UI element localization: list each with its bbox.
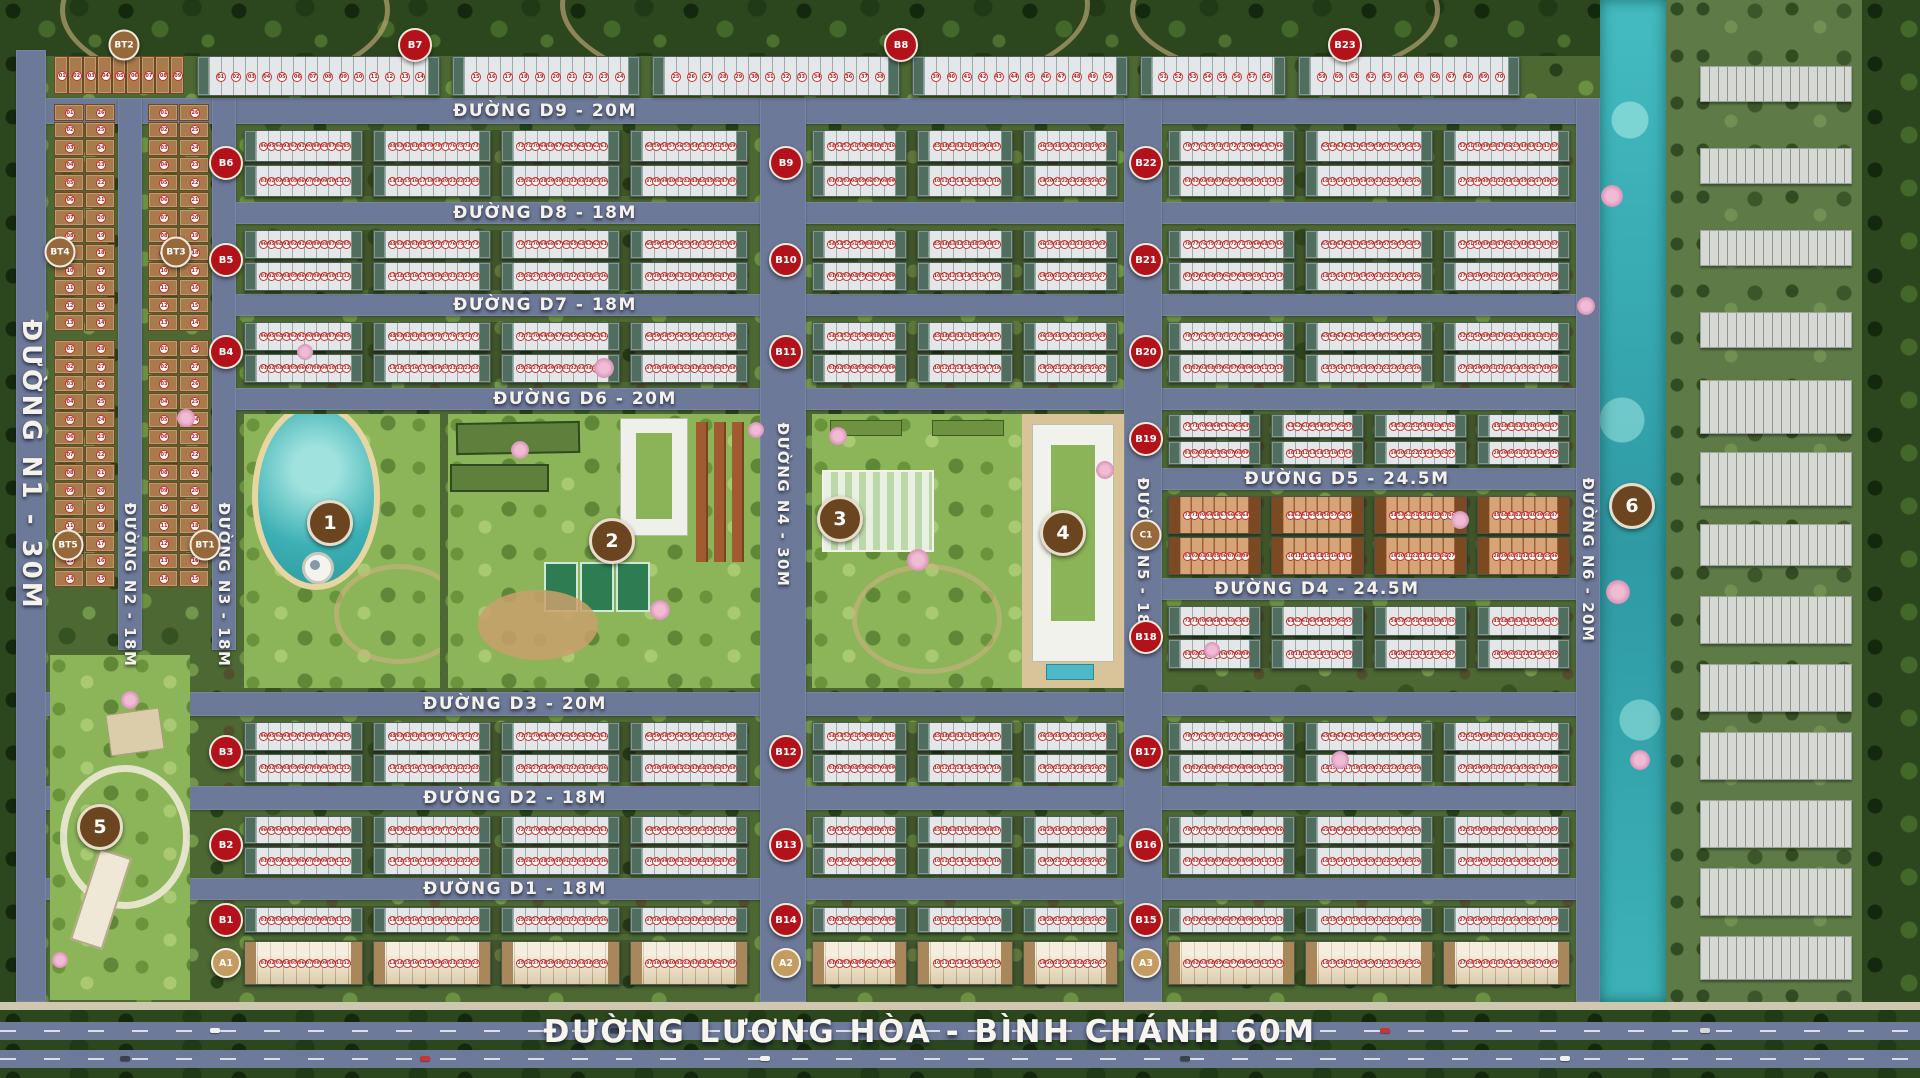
block-strip[interactable]: 8483828180797877767574731314151617181920…: [373, 722, 492, 782]
house-strip-upper[interactable]: 727170696867666564636261: [501, 322, 620, 351]
block-strip[interactable]: 545352515049484746010203040506070809: [812, 322, 907, 382]
tennis-court[interactable]: [616, 562, 650, 612]
villa-lot[interactable]: 06: [148, 429, 178, 446]
block-badge-B10[interactable]: B10: [769, 243, 803, 277]
villa-lot[interactable]: 10: [54, 499, 84, 516]
block-strip[interactable]: 454443424140393837282930313233343536: [1477, 606, 1570, 668]
villa-lot[interactable]: 14: [54, 570, 84, 587]
villa-lot[interactable]: 07: [148, 446, 178, 463]
block-row[interactable]: 7877767574737271706968676601020304050607…: [1168, 230, 1570, 290]
house-strip-lower[interactable]: 373839404142434445464748: [630, 847, 749, 875]
house-strip-upper[interactable]: 363534333231302928: [1023, 230, 1118, 259]
house-strip[interactable]: 192021222324252627: [1023, 941, 1118, 985]
house-strip-upper[interactable]: 65646362616059585756555453: [1305, 230, 1432, 259]
block-strip[interactable]: 545352515049484746192021222324252627: [1374, 496, 1467, 574]
villa-lot[interactable]: 26: [179, 375, 209, 392]
block-badge-B17[interactable]: B17: [1129, 735, 1163, 769]
block-strip[interactable]: 6564636261605958575655545314151617181920…: [1305, 130, 1432, 196]
block-badge-BT4[interactable]: BT4: [45, 237, 76, 268]
house-strip-upper[interactable]: 52515049484746454443424140: [1443, 230, 1570, 259]
block-strip[interactable]: 192021222324252627: [1023, 940, 1118, 986]
house-strip-upper[interactable]: 363534333231302928: [1023, 722, 1118, 751]
villa-lot[interactable]: 05: [112, 56, 126, 94]
house-strip-lower[interactable]: 131415161718192021222324: [373, 165, 492, 197]
house-strip-upper[interactable]: 65646362616059585756555453: [1305, 816, 1432, 844]
villa-strip-top[interactable]: 010203040506070809: [54, 56, 184, 96]
road-D6[interactable]: [236, 388, 1600, 410]
block-strip[interactable]: 8483828180797877767574731314151617181920…: [373, 130, 492, 196]
house-strip-upper[interactable]: 454443424140393837: [917, 816, 1012, 844]
villa-lot[interactable]: 10: [148, 499, 178, 516]
block-row[interactable]: 7877767574737271706968676601020304050607…: [1168, 130, 1570, 196]
house-strip-lower[interactable]: 01020304050607080910111213: [1168, 262, 1295, 291]
house-strip-upper[interactable]: 727170696867666564636261: [501, 722, 620, 751]
house-strip-upper[interactable]: 848382818079787776757473: [373, 722, 492, 751]
house-strip-upper[interactable]: 78777675747372717069686766: [1168, 322, 1295, 351]
villa-lot[interactable]: 21: [179, 192, 209, 209]
villa-lot[interactable]: 20: [85, 209, 115, 226]
block-strip[interactable]: 7877767574737271706968676601020304050607…: [1168, 816, 1295, 874]
villa-lot[interactable]: 02: [148, 358, 178, 375]
block-badge-B3[interactable]: B3: [209, 735, 243, 769]
block-strip-top[interactable]: 394041424344454647484950: [912, 56, 1128, 96]
villa-lot[interactable]: 24: [85, 139, 115, 156]
villa-lot[interactable]: 12: [148, 535, 178, 552]
block-badge-B9[interactable]: B9: [769, 146, 803, 180]
block-strip[interactable]: 545352515049484746192021222324252627: [1374, 414, 1467, 464]
house-strip-upper[interactable]: 454443424140393837: [917, 722, 1012, 751]
house-strip-lower[interactable]: 010203040506070809: [812, 754, 907, 783]
villa-group[interactable]: 0126022503240423052206210720081909181017…: [54, 104, 116, 332]
house-strip-upper[interactable]: 78777675747372717069686766: [1168, 816, 1295, 844]
block-strip[interactable]: 7271706968676665646362612526272829303132…: [501, 130, 620, 196]
block-badge-B8[interactable]: B8: [884, 28, 918, 62]
villa-lot[interactable]: 20: [179, 209, 209, 226]
block-row[interactable]: 7271706968676665640102030405060708096362…: [1168, 414, 1570, 464]
house-strip-upper[interactable]: 848382818079787776757473: [373, 816, 492, 844]
road-D3[interactable]: [46, 692, 1600, 716]
villa-lot[interactable]: 14: [148, 570, 178, 587]
block-badge-B7[interactable]: B7: [398, 28, 432, 62]
house-strip-lower[interactable]: 252627282930313233343536: [501, 165, 620, 197]
block-row[interactable]: 7877767574737271706968676601020304050607…: [1168, 816, 1570, 874]
villa-lot[interactable]: 08: [155, 56, 169, 94]
house-strip-upper[interactable]: 727170696867666564636261: [501, 816, 620, 844]
block-strip[interactable]: 454443424140393837282930313233343536: [1477, 414, 1570, 464]
amenity-badge-1[interactable]: 1: [307, 500, 353, 546]
house-strip-lower[interactable]: 27282930313233343536373839: [1443, 262, 1570, 291]
block-badge-B20[interactable]: B20: [1129, 335, 1163, 369]
villa-lot[interactable]: 24: [85, 411, 115, 428]
amenity-badge-5[interactable]: 5: [77, 804, 123, 850]
block-row[interactable]: 7271706968676665640102030405060708096362…: [1168, 606, 1570, 668]
house-strip-lower[interactable]: 27282930313233343536373839: [1443, 165, 1570, 197]
block-row[interactable]: 7877767574737271706968676601020304050607…: [1168, 322, 1570, 382]
block-row[interactable]: 5453525150494847460102030405060708094544…: [812, 722, 1118, 782]
villa-lot[interactable]: 26: [85, 104, 115, 121]
house-strip-upper[interactable]: 545352515049484746: [1374, 606, 1467, 636]
block-badge-C1[interactable]: C1: [1131, 520, 1162, 551]
block-badge-BT5[interactable]: BT5: [53, 530, 84, 561]
block-strip[interactable]: 373839404142434445464748: [630, 906, 749, 934]
villa-lot[interactable]: 17: [85, 262, 115, 279]
house-strip-lower[interactable]: 101112131415161718: [1271, 639, 1364, 669]
house-strip[interactable]: 252627282930313233343536: [501, 907, 620, 933]
house-strip[interactable]: 394041424344454647484950: [912, 56, 1128, 96]
road-D7[interactable]: [236, 294, 1600, 316]
block-strip[interactable]: 363534333231302928192021222324252627: [1023, 722, 1118, 782]
block-badge-B14[interactable]: B14: [769, 903, 803, 937]
block-strip[interactable]: 010203040506070809: [812, 940, 907, 986]
block-badge-B5[interactable]: B5: [209, 243, 243, 277]
villa-lot[interactable]: 16: [179, 279, 209, 296]
block-strip[interactable]: 363534333231302928192021222324252627: [1023, 230, 1118, 290]
block-badge-BT3[interactable]: BT3: [161, 237, 192, 268]
house-strip-lower[interactable]: 27282930313233343536373839: [1443, 754, 1570, 783]
block-strip-top[interactable]: 2526272829303132333435363738: [652, 56, 900, 96]
villa-lot[interactable]: 05: [54, 411, 84, 428]
block-strip[interactable]: 252627282930313233343536: [501, 940, 620, 986]
house-strip-upper[interactable]: 65646362616059585756555453: [1305, 322, 1432, 351]
house-strip[interactable]: 373839404142434445464748: [630, 907, 749, 933]
house-strip[interactable]: 010203040506070809101112: [244, 941, 363, 985]
house-strip-lower[interactable]: 01020304050607080910111213: [1168, 354, 1295, 383]
house-strip-lower[interactable]: 101112131415161718: [917, 847, 1012, 875]
block-strip[interactable]: 7877767574737271706968676601020304050607…: [1168, 230, 1295, 290]
block-row[interactable]: 5453525150494847460102030405060708094544…: [812, 816, 1118, 874]
house-strip-upper[interactable]: 78777675747372717069686766: [1168, 230, 1295, 259]
block-badge-B19[interactable]: B19: [1129, 422, 1163, 456]
villa-lot[interactable]: 01: [148, 104, 178, 121]
house-strip[interactable]: 14151617181920212223242526: [1305, 941, 1432, 985]
house-strip-lower[interactable]: 192021222324252627: [1023, 354, 1118, 383]
villa-lot[interactable]: 04: [148, 157, 178, 174]
block-row[interactable]: 9695949392919089888786850102030405060708…: [244, 130, 748, 196]
house-strip-upper[interactable]: 605958575655545352515049: [630, 722, 749, 751]
amenity-badge-2[interactable]: 2: [589, 518, 635, 564]
house-strip-upper[interactable]: 52515049484746454443424140: [1443, 722, 1570, 751]
block-strip[interactable]: 5251504948474645444342414027282930313233…: [1443, 722, 1570, 782]
block-strip[interactable]: 101112131415161718: [917, 940, 1012, 986]
block-strip[interactable]: 545352515049484746010203040506070809: [812, 722, 907, 782]
house-strip-lower[interactable]: 01020304050607080910111213: [1168, 847, 1295, 875]
villa-lot[interactable]: 11: [148, 279, 178, 296]
block-strip[interactable]: 14151617181920212223242526: [1305, 906, 1432, 934]
house-strip-lower[interactable]: 101112131415161718: [917, 262, 1012, 291]
block-badge-B11[interactable]: B11: [769, 335, 803, 369]
block-strip[interactable]: 5251504948474645444342414027282930313233…: [1443, 322, 1570, 382]
block-badge-B18[interactable]: B18: [1129, 620, 1163, 654]
block-badge-B21[interactable]: B21: [1129, 243, 1163, 277]
house-strip[interactable]: 596061626364656667686970: [1298, 56, 1520, 96]
block-strip[interactable]: 454443424140393837101112131415161718: [917, 322, 1012, 382]
block-badge-B12[interactable]: B12: [769, 735, 803, 769]
villa-lot[interactable]: 03: [54, 139, 84, 156]
block-strip[interactable]: 6059585756555453525150493738394041424344…: [630, 322, 749, 382]
villa-lot[interactable]: 15: [85, 297, 115, 314]
villa-lot[interactable]: 25: [85, 122, 115, 139]
villa-lot[interactable]: 04: [97, 56, 111, 94]
block-strip[interactable]: 727170696867666564010203040506070809: [1168, 414, 1261, 464]
house-strip-lower[interactable]: 192021222324252627: [1023, 754, 1118, 783]
house-strip[interactable]: 010203040506070809: [812, 907, 907, 933]
house-strip[interactable]: 192021222324252627: [1023, 907, 1118, 933]
house-strip-lower[interactable]: 101112131415161718: [917, 354, 1012, 383]
block-row[interactable]: 0102030405060708091011121314151617181920…: [244, 940, 748, 986]
villa-lot[interactable]: 11: [148, 517, 178, 534]
house-strip-upper[interactable]: 454443424140393837: [1477, 414, 1570, 438]
block-strip[interactable]: 01020304050607080910111213: [1168, 940, 1295, 986]
amenity-badge-3[interactable]: 3: [817, 496, 863, 542]
villa-lot[interactable]: 21: [179, 464, 209, 481]
villa-lot[interactable]: 16: [85, 553, 115, 570]
house-strip-upper[interactable]: 545352515049484746: [1374, 414, 1467, 438]
villa-lot[interactable]: 13: [148, 314, 178, 331]
block-strip[interactable]: 7271706968676665646362612526272829303132…: [501, 722, 620, 782]
house-strip-upper[interactable]: 848382818079787776757473: [373, 322, 492, 351]
block-strip[interactable]: 6564636261605958575655545314151617181920…: [1305, 230, 1432, 290]
house-strip-lower[interactable]: 010203040506070809: [812, 354, 907, 383]
house-strip-upper[interactable]: 78777675747372717069686766: [1168, 130, 1295, 162]
villa-lot[interactable]: 18: [85, 244, 115, 261]
villa-lot[interactable]: 14: [85, 314, 115, 331]
villa-lot[interactable]: 06: [54, 192, 84, 209]
amenity-badge-4[interactable]: 4: [1040, 510, 1086, 556]
block-strip[interactable]: 454443424140393837101112131415161718: [917, 722, 1012, 782]
villa-lot[interactable]: 06: [126, 56, 140, 94]
block-strip[interactable]: 9695949392919089888786850102030405060708…: [244, 816, 363, 874]
house-strip-lower[interactable]: 14151617181920212223242526: [1305, 165, 1432, 197]
road-D9[interactable]: [46, 98, 1600, 124]
villa-lot[interactable]: 17: [85, 535, 115, 552]
house-strip[interactable]: 27282930313233343536373839: [1443, 941, 1570, 985]
villa-lot[interactable]: 23: [85, 429, 115, 446]
block-strip[interactable]: 8483828180797877767574731314151617181920…: [373, 816, 492, 874]
villa-lot[interactable]: 19: [179, 499, 209, 516]
house-strip-upper[interactable]: 65646362616059585756555453: [1305, 722, 1432, 751]
house-strip-upper[interactable]: 605958575655545352515049: [630, 816, 749, 844]
villa-lot[interactable]: 05: [54, 174, 84, 191]
block-strip[interactable]: 27282930313233343536373839: [1443, 906, 1570, 934]
villa-lot[interactable]: 02: [54, 122, 84, 139]
block-row[interactable]: 0102030405060708091011121314151617181920…: [812, 940, 1118, 986]
house-strip-upper[interactable]: 969594939291908988878685: [244, 816, 363, 844]
block-strip[interactable]: 363534333231302928192021222324252627: [1023, 130, 1118, 196]
block-strip[interactable]: 8483828180797877767574731314151617181920…: [373, 230, 492, 290]
house-strip[interactable]: 2526272829303132333435363738: [652, 56, 900, 96]
villa-lot[interactable]: 06: [148, 192, 178, 209]
house-strip-upper[interactable]: 636261605958575655: [1271, 496, 1364, 534]
villa-lot[interactable]: 20: [85, 482, 115, 499]
block-strip[interactable]: 9695949392919089888786850102030405060708…: [244, 130, 363, 196]
house-strip-upper[interactable]: 636261605958575655: [1271, 606, 1364, 636]
house-strip-lower[interactable]: 192021222324252627: [1023, 165, 1118, 197]
villa-lot[interactable]: 08: [148, 464, 178, 481]
villa-lot[interactable]: 26: [179, 104, 209, 121]
block-badge-B22[interactable]: B22: [1129, 146, 1163, 180]
house-strip-upper[interactable]: 727170696867666564: [1168, 606, 1261, 636]
house-strip[interactable]: 0102030405060708091011121314: [197, 56, 440, 96]
house-strip[interactable]: 01020304050607080910111213: [1168, 941, 1295, 985]
house-strip-lower[interactable]: 252627282930313233343536: [501, 262, 620, 291]
villa-lot[interactable]: 03: [83, 56, 97, 94]
villa-lot[interactable]: 03: [148, 139, 178, 156]
house-strip-upper[interactable]: 78777675747372717069686766: [1168, 722, 1295, 751]
block-row[interactable]: 5453525150494847460102030405060708094544…: [812, 230, 1118, 290]
villa-lot[interactable]: 27: [179, 358, 209, 375]
villa-lot[interactable]: 23: [179, 157, 209, 174]
house-strip-upper[interactable]: 545352515049484746: [812, 130, 907, 162]
block-badge-A2[interactable]: A2: [771, 948, 801, 978]
house-strip-lower[interactable]: 101112131415161718: [1271, 441, 1364, 465]
block-row[interactable]: 9695949392919089888786850102030405060708…: [244, 722, 748, 782]
block-strip[interactable]: 454443424140393837101112131415161718: [917, 130, 1012, 196]
block-strip[interactable]: 636261605958575655101112131415161718: [1271, 606, 1364, 668]
villa-lot[interactable]: 12: [54, 297, 84, 314]
house-strip-upper[interactable]: 969594939291908988878685: [244, 722, 363, 751]
villa-lot[interactable]: 08: [54, 464, 84, 481]
block-strip[interactable]: 6059585756555453525150493738394041424344…: [630, 230, 749, 290]
house-strip-lower[interactable]: 14151617181920212223242526: [1305, 354, 1432, 383]
block-strip[interactable]: 5251504948474645444342414027282930313233…: [1443, 230, 1570, 290]
house-strip-lower[interactable]: 010203040506070809101112: [244, 847, 363, 875]
house-strip[interactable]: 14151617181920212223242526: [1305, 907, 1432, 933]
house-strip-lower[interactable]: 282930313233343536: [1477, 537, 1570, 575]
house-strip-upper[interactable]: 636261605958575655: [1271, 414, 1364, 438]
house-strip-upper[interactable]: 52515049484746454443424140: [1443, 322, 1570, 351]
villa-lot[interactable]: 11: [54, 279, 84, 296]
block-strip-top[interactable]: 5152535455565758: [1140, 56, 1286, 96]
block-strip[interactable]: 131415161718192021222324: [373, 906, 492, 934]
house-strip-lower[interactable]: 010203040506070809101112: [244, 754, 363, 783]
block-strip[interactable]: 9695949392919089888786850102030405060708…: [244, 230, 363, 290]
house-strip-lower[interactable]: 14151617181920212223242526: [1305, 262, 1432, 291]
house-strip-upper[interactable]: 545352515049484746: [812, 230, 907, 259]
block-strip[interactable]: 101112131415161718: [917, 906, 1012, 934]
block-strip[interactable]: 6564636261605958575655545314151617181920…: [1305, 816, 1432, 874]
villa-lot[interactable]: 28: [85, 340, 115, 357]
block-strip[interactable]: 7877767574737271706968676601020304050607…: [1168, 130, 1295, 196]
house-strip-lower[interactable]: 27282930313233343536373839: [1443, 847, 1570, 875]
block-strip[interactable]: 8483828180797877767574731314151617181920…: [373, 322, 492, 382]
house-strip-upper[interactable]: 454443424140393837: [1477, 606, 1570, 636]
block-badge-B6[interactable]: B6: [209, 146, 243, 180]
house-strip-upper[interactable]: 969594939291908988878685: [244, 230, 363, 259]
house-strip-lower[interactable]: 373839404142434445464748: [630, 754, 749, 783]
road-D2[interactable]: [46, 786, 1600, 810]
block-strip[interactable]: 545352515049484746010203040506070809: [812, 230, 907, 290]
house-strip-lower[interactable]: 27282930313233343536373839: [1443, 354, 1570, 383]
block-strip[interactable]: 545352515049484746192021222324252627: [1374, 606, 1467, 668]
villa-lot[interactable]: 28: [179, 340, 209, 357]
block-badge-B23[interactable]: B23: [1328, 28, 1362, 62]
house-strip-upper[interactable]: 454443424140393837: [1477, 496, 1570, 534]
house-strip-lower[interactable]: 192021222324252627: [1374, 537, 1467, 575]
house-strip-lower[interactable]: 010203040506070809: [812, 262, 907, 291]
house-strip-lower[interactable]: 010203040506070809: [812, 165, 907, 197]
villa-lot[interactable]: 05: [148, 411, 178, 428]
villa-lot[interactable]: 12: [148, 297, 178, 314]
house-strip-lower[interactable]: 373839404142434445464748: [630, 354, 749, 383]
house-strip-lower[interactable]: 252627282930313233343536: [501, 754, 620, 783]
house-strip-lower[interactable]: 101112131415161718: [917, 754, 1012, 783]
villa-lot[interactable]: 07: [54, 446, 84, 463]
block-strip[interactable]: 636261605958575655101112131415161718: [1271, 496, 1364, 574]
house-strip-lower[interactable]: 131415161718192021222324: [373, 262, 492, 291]
block-strip[interactable]: 6059585756555453525150493738394041424344…: [630, 722, 749, 782]
villa-lot[interactable]: 04: [54, 157, 84, 174]
villa-lot[interactable]: 09: [148, 482, 178, 499]
villa-lot[interactable]: 27: [85, 358, 115, 375]
house-strip-upper[interactable]: 727170696867666564636261: [501, 130, 620, 162]
house-strip-lower[interactable]: 373839404142434445464748: [630, 262, 749, 291]
block-row[interactable]: 0102030405060708091011121314151617181920…: [244, 906, 748, 934]
house-strip-lower[interactable]: 252627282930313233343536: [501, 847, 620, 875]
block-badge-B16[interactable]: B16: [1129, 828, 1163, 862]
block-row[interactable]: 9695949392919089888786850102030405060708…: [244, 230, 748, 290]
block-strip[interactable]: 252627282930313233343536: [501, 906, 620, 934]
block-strip[interactable]: 6564636261605958575655545314151617181920…: [1305, 722, 1432, 782]
block-row[interactable]: 9695949392919089888786850102030405060708…: [244, 816, 748, 874]
villa-lot[interactable]: 04: [54, 393, 84, 410]
block-strip[interactable]: 14151617181920212223242526: [1305, 940, 1432, 986]
villa-lot[interactable]: 25: [179, 122, 209, 139]
house-strip[interactable]: 101112131415161718: [917, 907, 1012, 933]
villa-lot[interactable]: 01: [54, 104, 84, 121]
block-badge-BT2[interactable]: BT2: [109, 30, 140, 61]
house-strip[interactable]: 131415161718192021222324: [373, 907, 492, 933]
block-strip[interactable]: 545352515049484746010203040506070809: [812, 816, 907, 874]
house-strip-lower[interactable]: 010203040506070809101112: [244, 165, 363, 197]
house-strip-lower[interactable]: 373839404142434445464748: [630, 165, 749, 197]
house-strip-upper[interactable]: 969594939291908988878685: [244, 130, 363, 162]
block-strip[interactable]: 6059585756555453525150493738394041424344…: [630, 130, 749, 196]
villa-lot[interactable]: 07: [148, 209, 178, 226]
house-strip-upper[interactable]: 848382818079787776757473: [373, 130, 492, 162]
block-badge-B15[interactable]: B15: [1129, 903, 1163, 937]
villa-lot[interactable]: 22: [85, 446, 115, 463]
block-badge-B4[interactable]: B4: [209, 335, 243, 369]
house-strip-lower[interactable]: 131415161718192021222324: [373, 754, 492, 783]
house-strip[interactable]: 131415161718192021222324: [373, 941, 492, 985]
villa-lot[interactable]: 02: [148, 122, 178, 139]
villa-lot[interactable]: 03: [148, 375, 178, 392]
villa-lot[interactable]: 25: [85, 393, 115, 410]
block-strip[interactable]: 454443424140393837282930313233343536: [1477, 496, 1570, 574]
block-row[interactable]: 0102030405060708091011121314151617181920…: [1168, 906, 1570, 934]
block-row[interactable]: 0102030405060708091011121314151617181920…: [1168, 940, 1570, 986]
block-strip[interactable]: 7877767574737271706968676601020304050607…: [1168, 322, 1295, 382]
villa-lot[interactable]: 21: [85, 192, 115, 209]
block-strip[interactable]: 373839404142434445464748: [630, 940, 749, 986]
block-strip[interactable]: 010203040506070809101112: [244, 940, 363, 986]
house-strip-upper[interactable]: 454443424140393837: [917, 322, 1012, 351]
block-strip[interactable]: 363534333231302928192021222324252627: [1023, 816, 1118, 874]
villa-lot[interactable]: 01: [148, 340, 178, 357]
block-row[interactable]: 5453525150494847460102030405060708094544…: [812, 322, 1118, 382]
road-D8[interactable]: [236, 202, 1600, 224]
house-strip-upper[interactable]: 454443424140393837: [917, 130, 1012, 162]
house-strip-upper[interactable]: 848382818079787776757473: [373, 230, 492, 259]
villa-lot[interactable]: 19: [85, 499, 115, 516]
house-strip-upper[interactable]: 605958575655545352515049: [630, 322, 749, 351]
house-strip-lower[interactable]: 101112131415161718: [1271, 537, 1364, 575]
house-strip-upper[interactable]: 454443424140393837: [917, 230, 1012, 259]
block-badge-B13[interactable]: B13: [769, 828, 803, 862]
house-strip-upper[interactable]: 363534333231302928: [1023, 816, 1118, 844]
block-badge-A1[interactable]: A1: [211, 948, 241, 978]
block-strip[interactable]: 5251504948474645444342414027282930313233…: [1443, 816, 1570, 874]
